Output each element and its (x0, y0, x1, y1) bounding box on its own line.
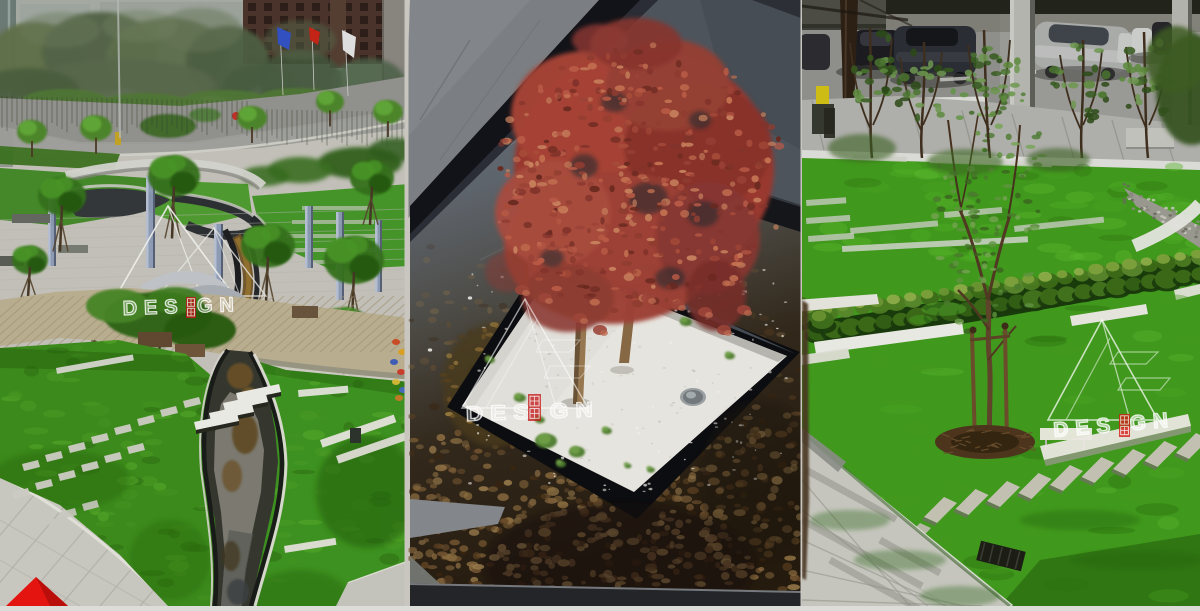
svg-text:DES GN: DES GN (122, 294, 241, 320)
